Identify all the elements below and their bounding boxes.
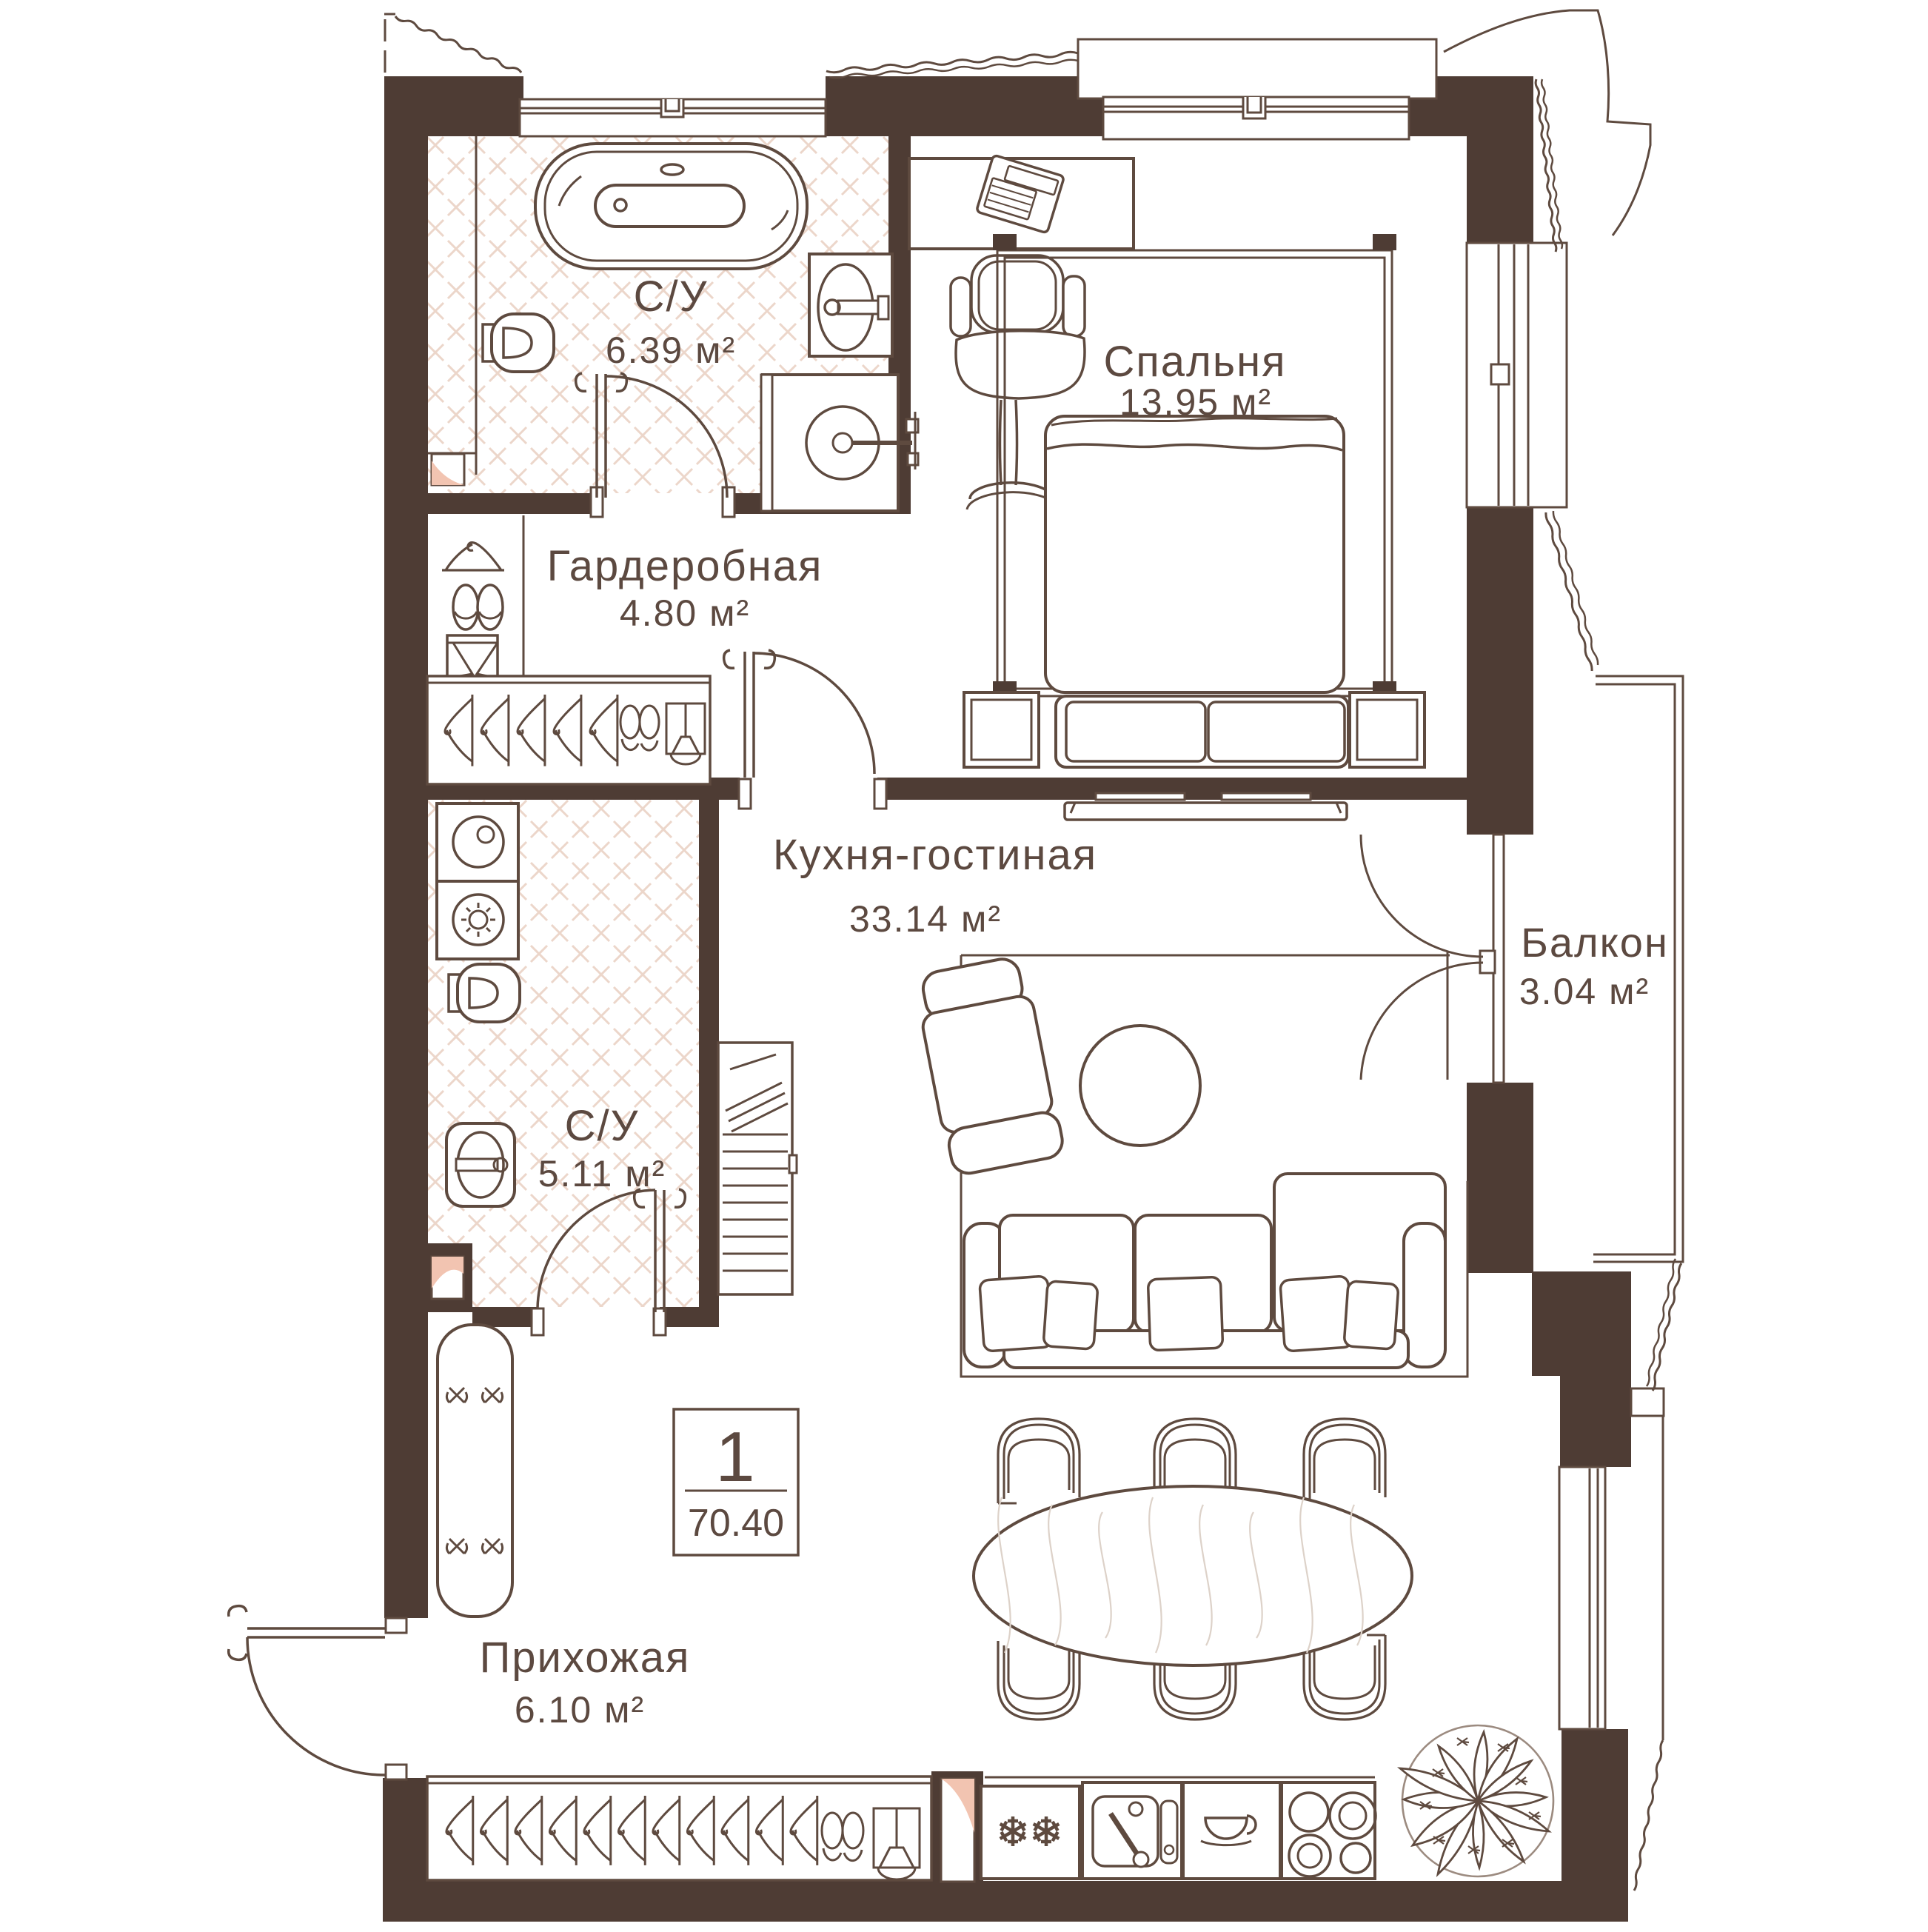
svg-text:Гардеробная: Гардеробная bbox=[547, 542, 823, 590]
svg-text:С/У: С/У bbox=[634, 273, 709, 321]
svg-text:13.95 м²: 13.95 м² bbox=[1119, 381, 1272, 423]
svg-text:4.80 м²: 4.80 м² bbox=[620, 592, 750, 634]
svg-text:Прихожая: Прихожая bbox=[480, 1634, 691, 1682]
svg-text:С/У: С/У bbox=[565, 1102, 640, 1150]
svg-text:1: 1 bbox=[715, 1417, 756, 1497]
svg-text:Кухня-гостиная: Кухня-гостиная bbox=[773, 831, 1097, 879]
svg-text:70.40: 70.40 bbox=[688, 1502, 784, 1545]
svg-text:3.04 м²: 3.04 м² bbox=[1519, 971, 1650, 1012]
svg-text:Спальня: Спальня bbox=[1103, 338, 1286, 386]
svg-text:6.39 м²: 6.39 м² bbox=[606, 330, 736, 371]
svg-text:5.11 м²: 5.11 м² bbox=[538, 1153, 666, 1194]
svg-text:33.14 м²: 33.14 м² bbox=[849, 898, 1002, 940]
svg-text:Балкон: Балкон bbox=[1521, 919, 1669, 966]
svg-text:6.10 м²: 6.10 м² bbox=[515, 1689, 645, 1731]
